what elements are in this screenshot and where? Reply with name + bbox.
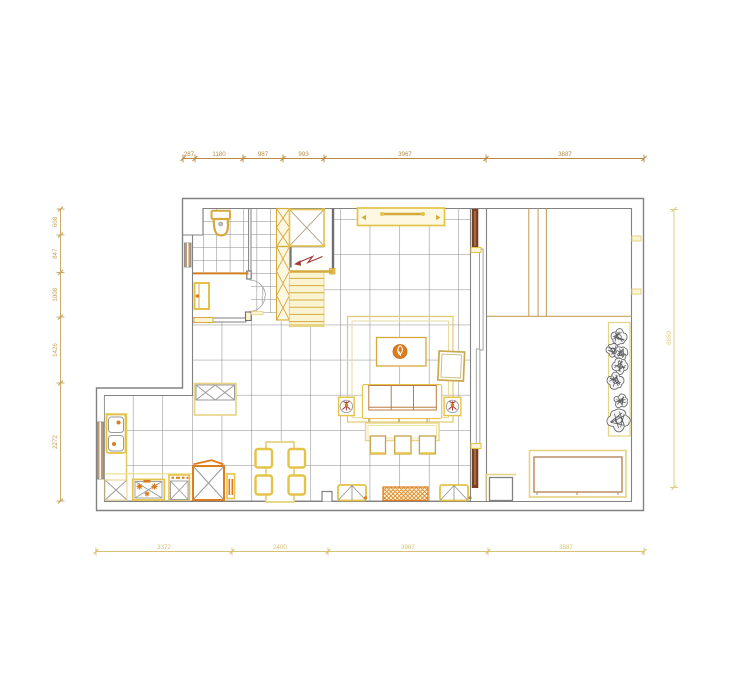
svg-text:2400: 2400 (273, 544, 287, 551)
svg-text:608: 608 (52, 216, 59, 227)
svg-text:1426: 1426 (52, 343, 59, 357)
svg-text:287: 287 (184, 151, 195, 158)
svg-text:3372: 3372 (157, 544, 171, 551)
svg-text:3967: 3967 (401, 544, 415, 551)
svg-text:2272: 2272 (52, 435, 59, 449)
svg-text:6650: 6650 (666, 331, 673, 345)
svg-text:987: 987 (258, 151, 269, 158)
svg-text:3967: 3967 (398, 151, 412, 158)
svg-text:3887: 3887 (558, 151, 572, 158)
svg-text:1180: 1180 (212, 151, 226, 158)
svg-text:993: 993 (298, 151, 309, 158)
svg-text:847: 847 (52, 248, 59, 259)
svg-text:3887: 3887 (559, 544, 573, 551)
svg-text:1008: 1008 (52, 287, 59, 301)
